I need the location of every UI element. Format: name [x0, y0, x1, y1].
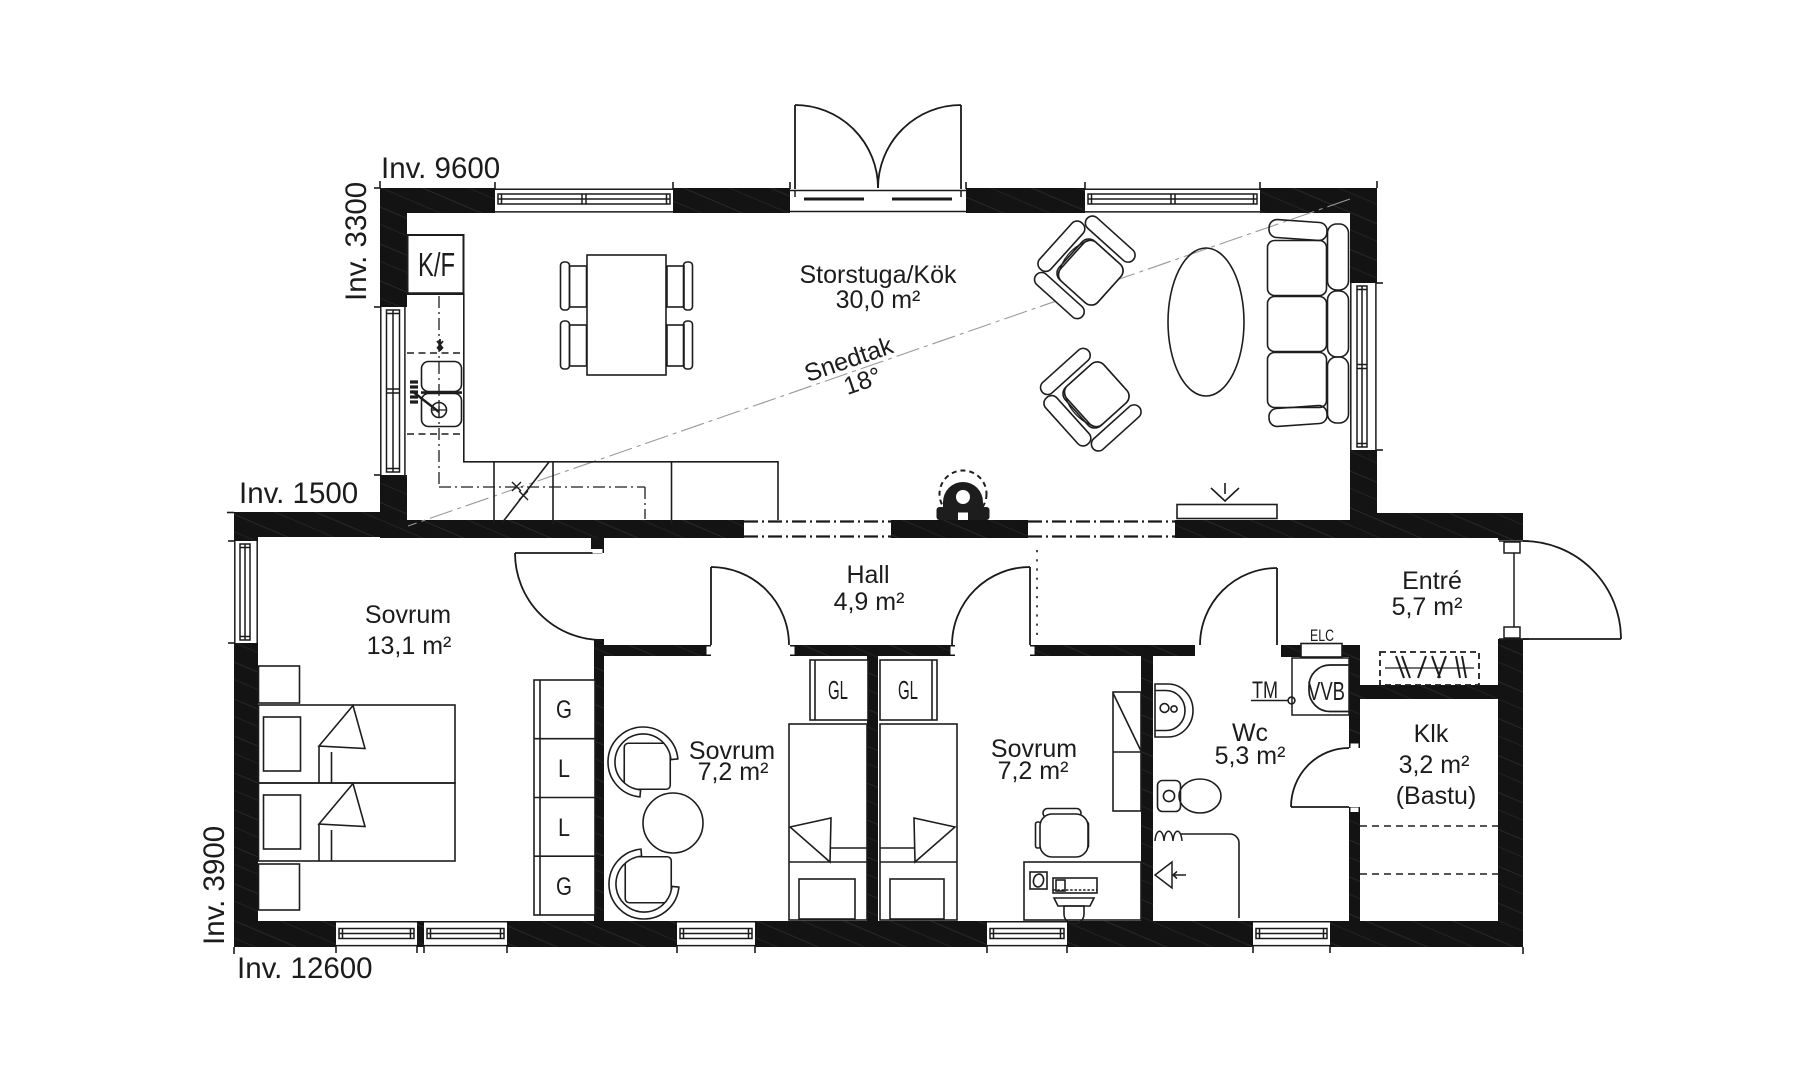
svg-text:Storstuga/Kök: Storstuga/Kök [799, 261, 957, 289]
svg-text:Sovrum: Sovrum [365, 601, 451, 629]
svg-text:5,3 m²: 5,3 m² [1215, 742, 1286, 770]
svg-text:ELC: ELC [1310, 626, 1334, 645]
svg-text:5,7 m²: 5,7 m² [1392, 593, 1463, 621]
svg-text:3,2 m²: 3,2 m² [1399, 751, 1470, 779]
svg-text:GL: GL [828, 675, 848, 705]
svg-text:G: G [556, 873, 572, 901]
svg-text:(Bastu): (Bastu) [1396, 782, 1477, 810]
svg-text:L: L [558, 755, 570, 783]
svg-text:4,9 m²: 4,9 m² [834, 588, 905, 616]
svg-text:Inv. 3300: Inv. 3300 [340, 182, 373, 301]
svg-text:Inv. 3900: Inv. 3900 [198, 826, 231, 945]
svg-text:GL: GL [898, 675, 918, 705]
svg-text:Inv. 12600: Inv. 12600 [237, 952, 373, 985]
svg-text:Inv. 9600: Inv. 9600 [381, 152, 500, 185]
svg-text:13,1 m²: 13,1 m² [367, 632, 452, 660]
svg-text:7,2 m²: 7,2 m² [698, 758, 769, 786]
svg-text:K/F: K/F [418, 246, 455, 283]
svg-text:TM: TM [1252, 677, 1278, 704]
svg-text:Hall: Hall [846, 561, 889, 589]
svg-text:L: L [558, 814, 570, 842]
svg-text:30,0 m²: 30,0 m² [836, 286, 921, 314]
svg-text:G: G [556, 696, 572, 724]
svg-text:7,2 m²: 7,2 m² [998, 757, 1069, 785]
svg-text:Entré: Entré [1402, 567, 1462, 595]
svg-text:Klk: Klk [1414, 720, 1449, 748]
svg-text:VVB: VVB [1308, 676, 1345, 706]
svg-text:Inv. 1500: Inv. 1500 [239, 477, 358, 510]
